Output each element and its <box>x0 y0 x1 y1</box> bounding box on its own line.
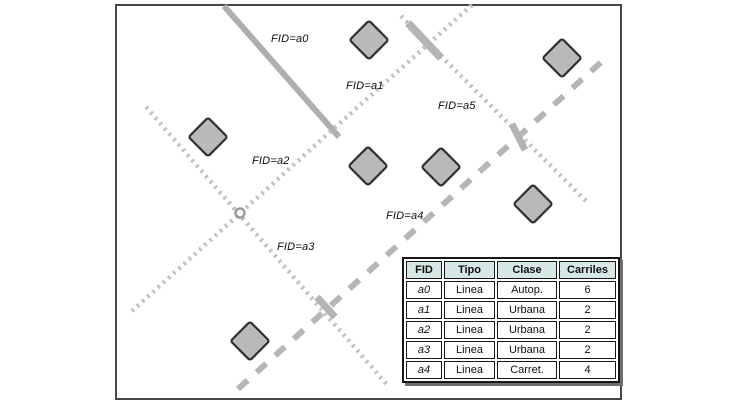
attr-table-cell: 6 <box>559 281 616 299</box>
fid-label-a5: FID=a5 <box>438 100 476 112</box>
attr-table-cell: Linea <box>444 281 495 299</box>
attr-table-cell: Autop. <box>497 281 557 299</box>
attr-table-header-fid: FID <box>406 261 442 279</box>
attr-table-cell: Carret. <box>497 361 557 379</box>
attribute-table: FIDTipoClaseCarriles a0LineaAutop.6a1Lin… <box>402 257 620 383</box>
attr-table-cell: Urbana <box>497 341 557 359</box>
attr-table-header-tipo: Tipo <box>444 261 495 279</box>
attr-table-row-a2: a2LineaUrbana2 <box>406 321 616 339</box>
attr-table-cell: a1 <box>406 301 442 319</box>
attr-table-cell: a2 <box>406 321 442 339</box>
attr-table-row-a1: a1LineaUrbana2 <box>406 301 616 319</box>
attr-table-cell: Urbana <box>497 301 557 319</box>
attr-table-cell: a4 <box>406 361 442 379</box>
attr-table-row-a0: a0LineaAutop.6 <box>406 281 616 299</box>
attr-table-cell: 2 <box>559 341 616 359</box>
fid-label-a3: FID=a3 <box>277 241 315 253</box>
fid-label-a1: FID=a1 <box>346 80 384 92</box>
attr-table-cell: 2 <box>559 321 616 339</box>
attr-table-cell: a3 <box>406 341 442 359</box>
fid-label-a4: FID=a4 <box>386 210 424 222</box>
attr-table-cell: 2 <box>559 301 616 319</box>
attr-table-header-clase: Clase <box>497 261 557 279</box>
attr-table-cell: Linea <box>444 361 495 379</box>
attr-table-row-a3: a3LineaUrbana2 <box>406 341 616 359</box>
figure-canvas: FID=a0FID=a1FID=a5FID=a2FID=a4FID=a3 FID… <box>0 0 732 408</box>
attr-table-cell: 4 <box>559 361 616 379</box>
attr-table-cell: a0 <box>406 281 442 299</box>
fid-label-a2: FID=a2 <box>252 155 290 167</box>
attr-table-cell: Linea <box>444 341 495 359</box>
attr-table-row-a4: a4LineaCarret.4 <box>406 361 616 379</box>
attr-table-header-carriles: Carriles <box>559 261 616 279</box>
attribute-table-header-row: FIDTipoClaseCarriles <box>406 261 616 279</box>
fid-label-a0: FID=a0 <box>271 33 309 45</box>
attr-table-cell: Linea <box>444 321 495 339</box>
attr-table-cell: Linea <box>444 301 495 319</box>
attr-table-cell: Urbana <box>497 321 557 339</box>
